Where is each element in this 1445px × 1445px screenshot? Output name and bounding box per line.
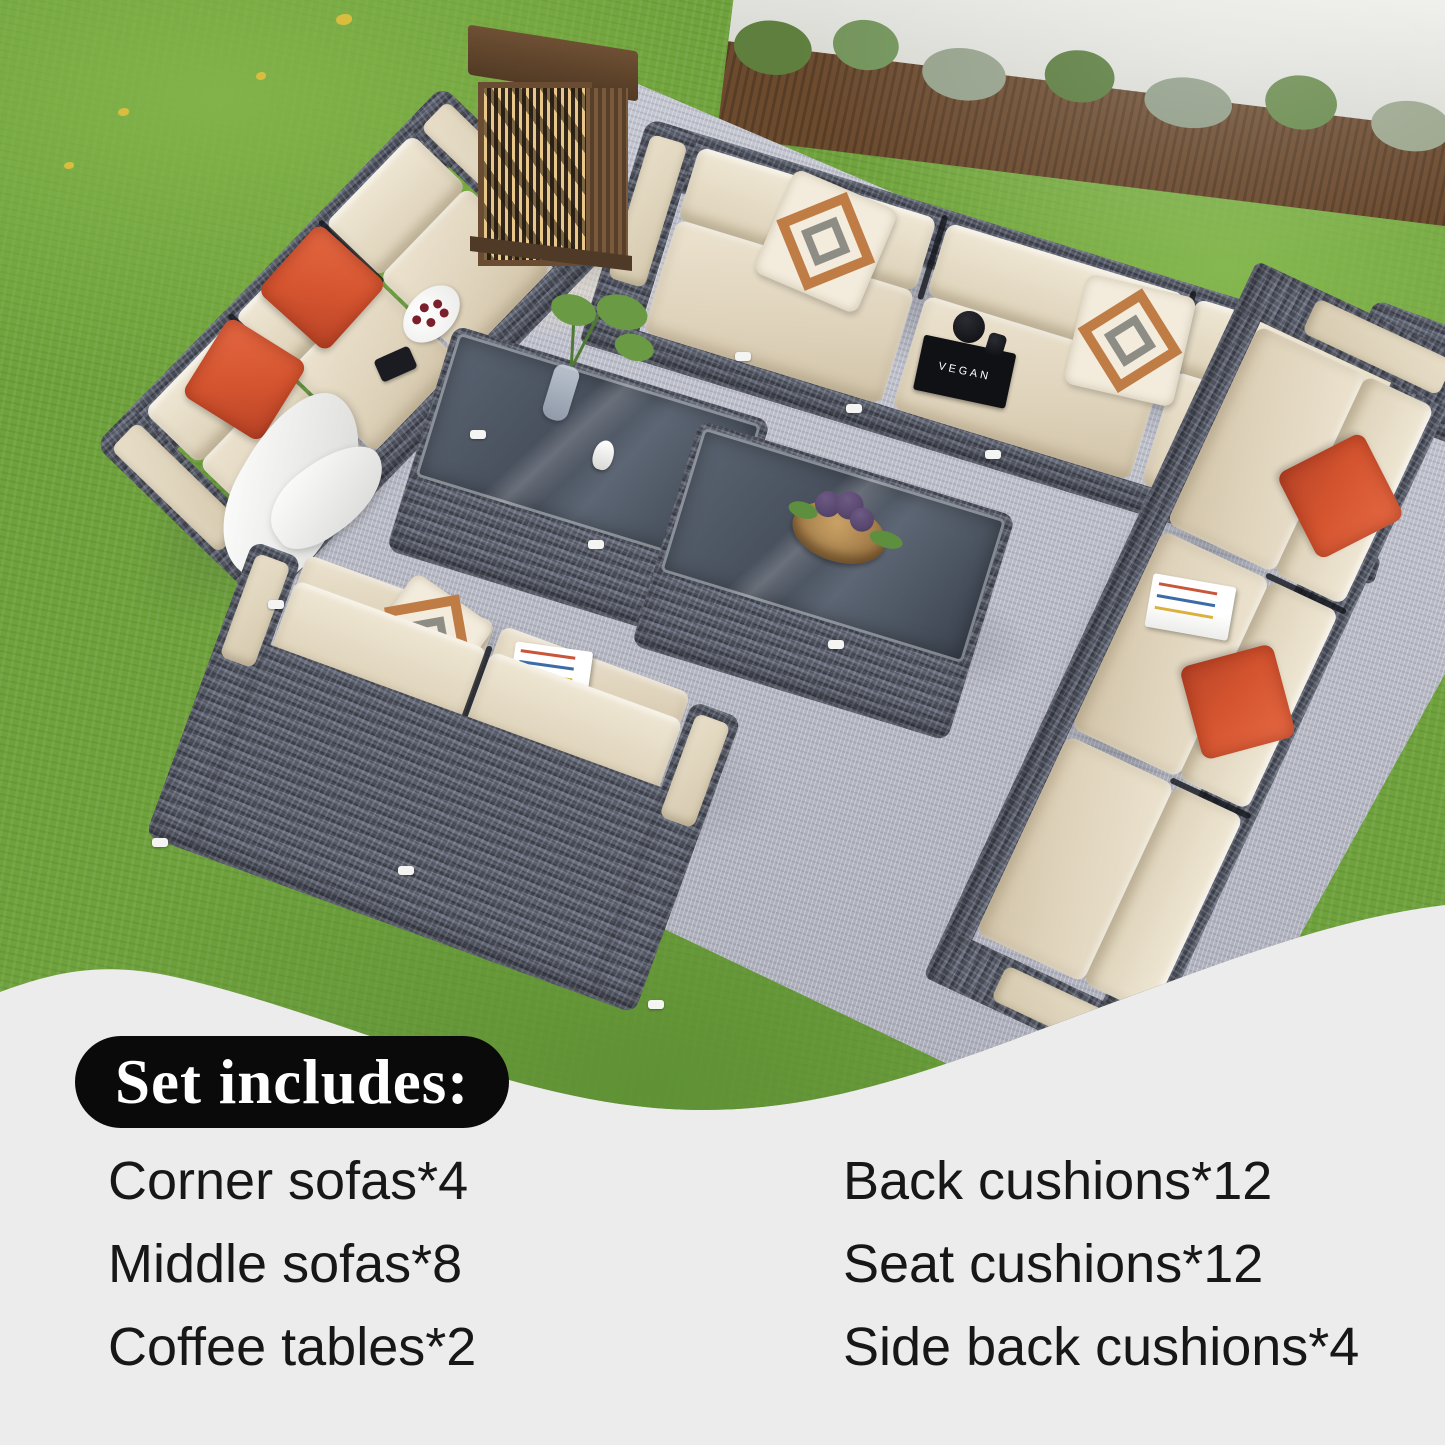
set-item: Back cushions*12: [843, 1140, 1359, 1223]
set-includes-badge: Set includes:: [75, 1036, 509, 1128]
lantern-side-panel: [586, 88, 628, 256]
badge-label: Set includes:: [115, 1046, 469, 1119]
set-item: Middle sofas*8: [108, 1223, 476, 1306]
set-item: Seat cushions*12: [843, 1223, 1359, 1306]
sofa-foot: [268, 600, 284, 609]
sofa-foot: [985, 450, 1001, 459]
sofa-foot: [398, 866, 414, 875]
book-spine-text: VEGAN: [937, 360, 992, 383]
set-items-left-column: Corner sofas*4 Middle sofas*8 Coffee tab…: [108, 1140, 476, 1389]
photo-scene: VEGAN: [0, 0, 1445, 1210]
sofa-foot: [846, 404, 862, 413]
magazine-stripe: [1158, 582, 1216, 595]
table-foot: [828, 640, 844, 649]
sofa-foot: [735, 352, 751, 361]
magazine-stripe: [1156, 594, 1214, 607]
sofa-foot: [152, 838, 168, 847]
table-foot: [588, 540, 604, 549]
cherry: [418, 301, 431, 314]
set-item: Coffee tables*2: [108, 1306, 476, 1389]
set-item: Corner sofas*4: [108, 1140, 476, 1223]
set-item: Side back cushions*4: [843, 1306, 1359, 1389]
magazine-stripe: [1154, 606, 1212, 619]
cherry: [410, 314, 423, 327]
patio-lantern: [468, 38, 640, 266]
sofa-foot: [1108, 1078, 1124, 1087]
set-items-right-column: Back cushions*12 Seat cushions*12 Side b…: [843, 1140, 1359, 1389]
sofa-foot: [470, 430, 486, 439]
cherry: [425, 316, 438, 329]
sofa-foot: [648, 1000, 664, 1009]
magazine-stripe: [521, 649, 575, 660]
product-image: VEGAN: [0, 0, 1445, 1445]
cherry: [438, 307, 451, 320]
